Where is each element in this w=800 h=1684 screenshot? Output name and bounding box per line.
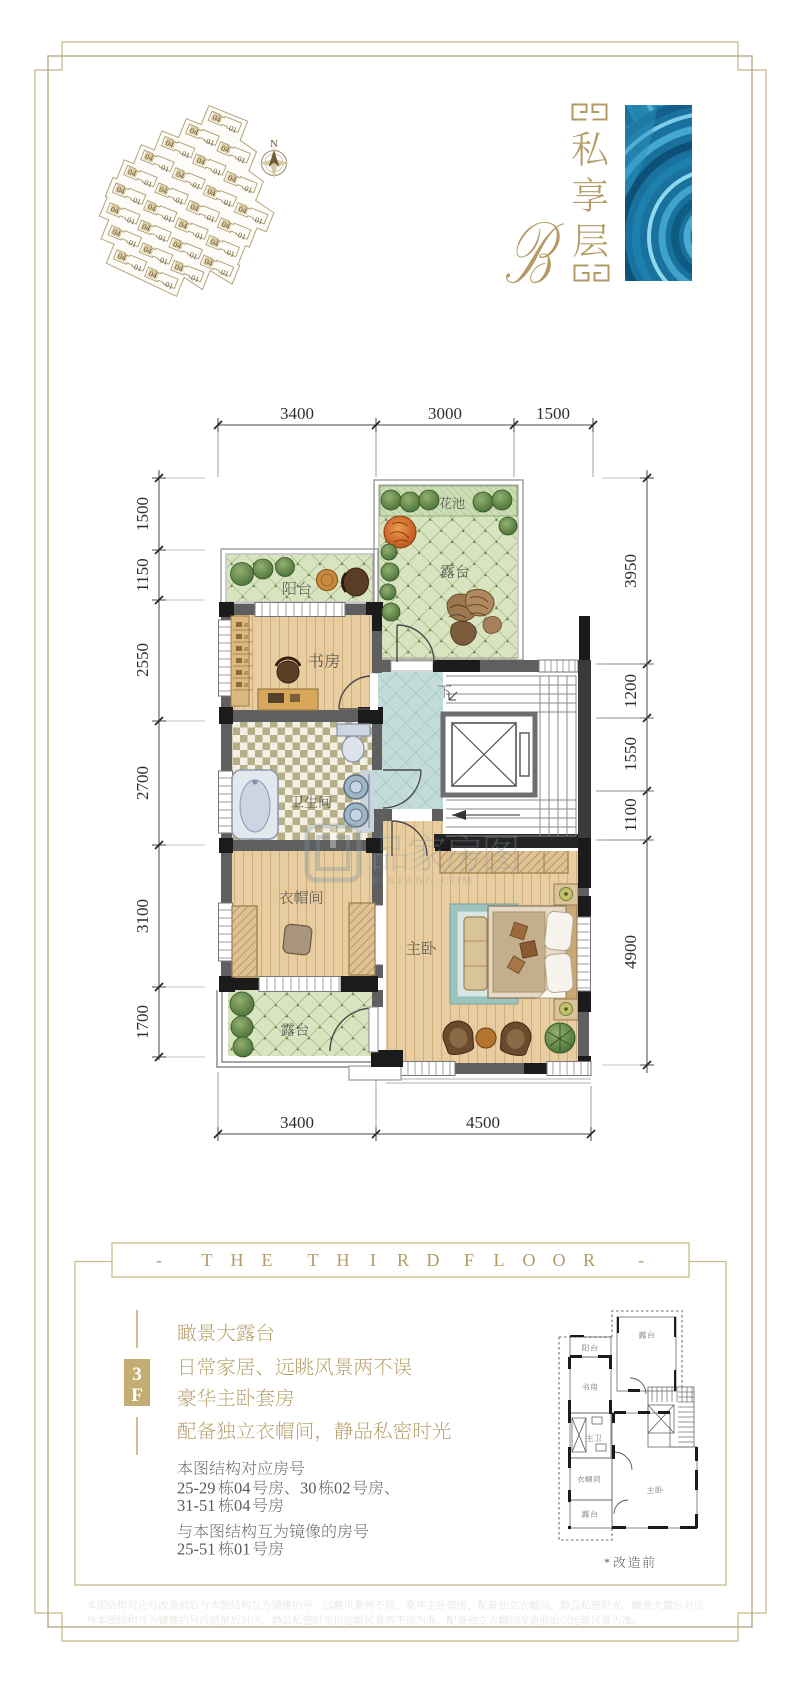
svg-text:1500: 1500: [133, 497, 152, 531]
svg-text:*: *: [604, 1555, 610, 1569]
svg-text:R: R: [583, 1250, 595, 1270]
svg-text:O: O: [523, 1250, 536, 1270]
svg-text:2700: 2700: [133, 766, 152, 800]
svg-text:01: 01: [234, 1540, 251, 1559]
svg-text:2550: 2550: [133, 643, 152, 677]
svg-text:T: T: [308, 1250, 319, 1270]
svg-text:F: F: [464, 1250, 474, 1270]
svg-text:D: D: [427, 1250, 440, 1270]
svg-text:I: I: [370, 1250, 376, 1270]
svg-text:25-29: 25-29: [177, 1479, 216, 1498]
svg-text:O: O: [553, 1250, 566, 1270]
svg-text:02: 02: [334, 1479, 351, 1498]
svg-text:3400: 3400: [280, 1113, 314, 1132]
svg-text:04: 04: [234, 1496, 251, 1515]
svg-text:PINFANG.COM: PINFANG.COM: [372, 875, 474, 887]
svg-text:1500: 1500: [536, 404, 570, 423]
svg-text:H: H: [337, 1250, 350, 1270]
svg-text:1200: 1200: [621, 674, 640, 708]
svg-text:-: -: [638, 1250, 644, 1270]
svg-text:R: R: [397, 1250, 409, 1270]
svg-text:3000: 3000: [428, 404, 462, 423]
svg-text:1150: 1150: [133, 558, 152, 591]
svg-text:1100: 1100: [621, 798, 640, 831]
svg-text:3: 3: [132, 1364, 142, 1385]
svg-text:3100: 3100: [133, 899, 152, 933]
svg-text:N: N: [270, 138, 278, 150]
svg-text:F: F: [131, 1385, 143, 1406]
svg-text:-: -: [156, 1250, 162, 1270]
svg-text:H: H: [231, 1250, 244, 1270]
svg-text:25-51: 25-51: [177, 1540, 216, 1559]
svg-text:4500: 4500: [466, 1113, 500, 1132]
svg-text:1550: 1550: [621, 737, 640, 771]
svg-text:L: L: [494, 1250, 505, 1270]
svg-text:3400: 3400: [280, 404, 314, 423]
svg-text:04: 04: [234, 1479, 251, 1498]
svg-text:30: 30: [300, 1479, 317, 1498]
svg-text:3950: 3950: [621, 554, 640, 588]
svg-text:E: E: [262, 1250, 273, 1270]
svg-text:4900: 4900: [621, 935, 640, 969]
svg-text:31-51: 31-51: [177, 1496, 216, 1515]
svg-text:T: T: [202, 1250, 213, 1270]
svg-text:1700: 1700: [133, 1005, 152, 1039]
